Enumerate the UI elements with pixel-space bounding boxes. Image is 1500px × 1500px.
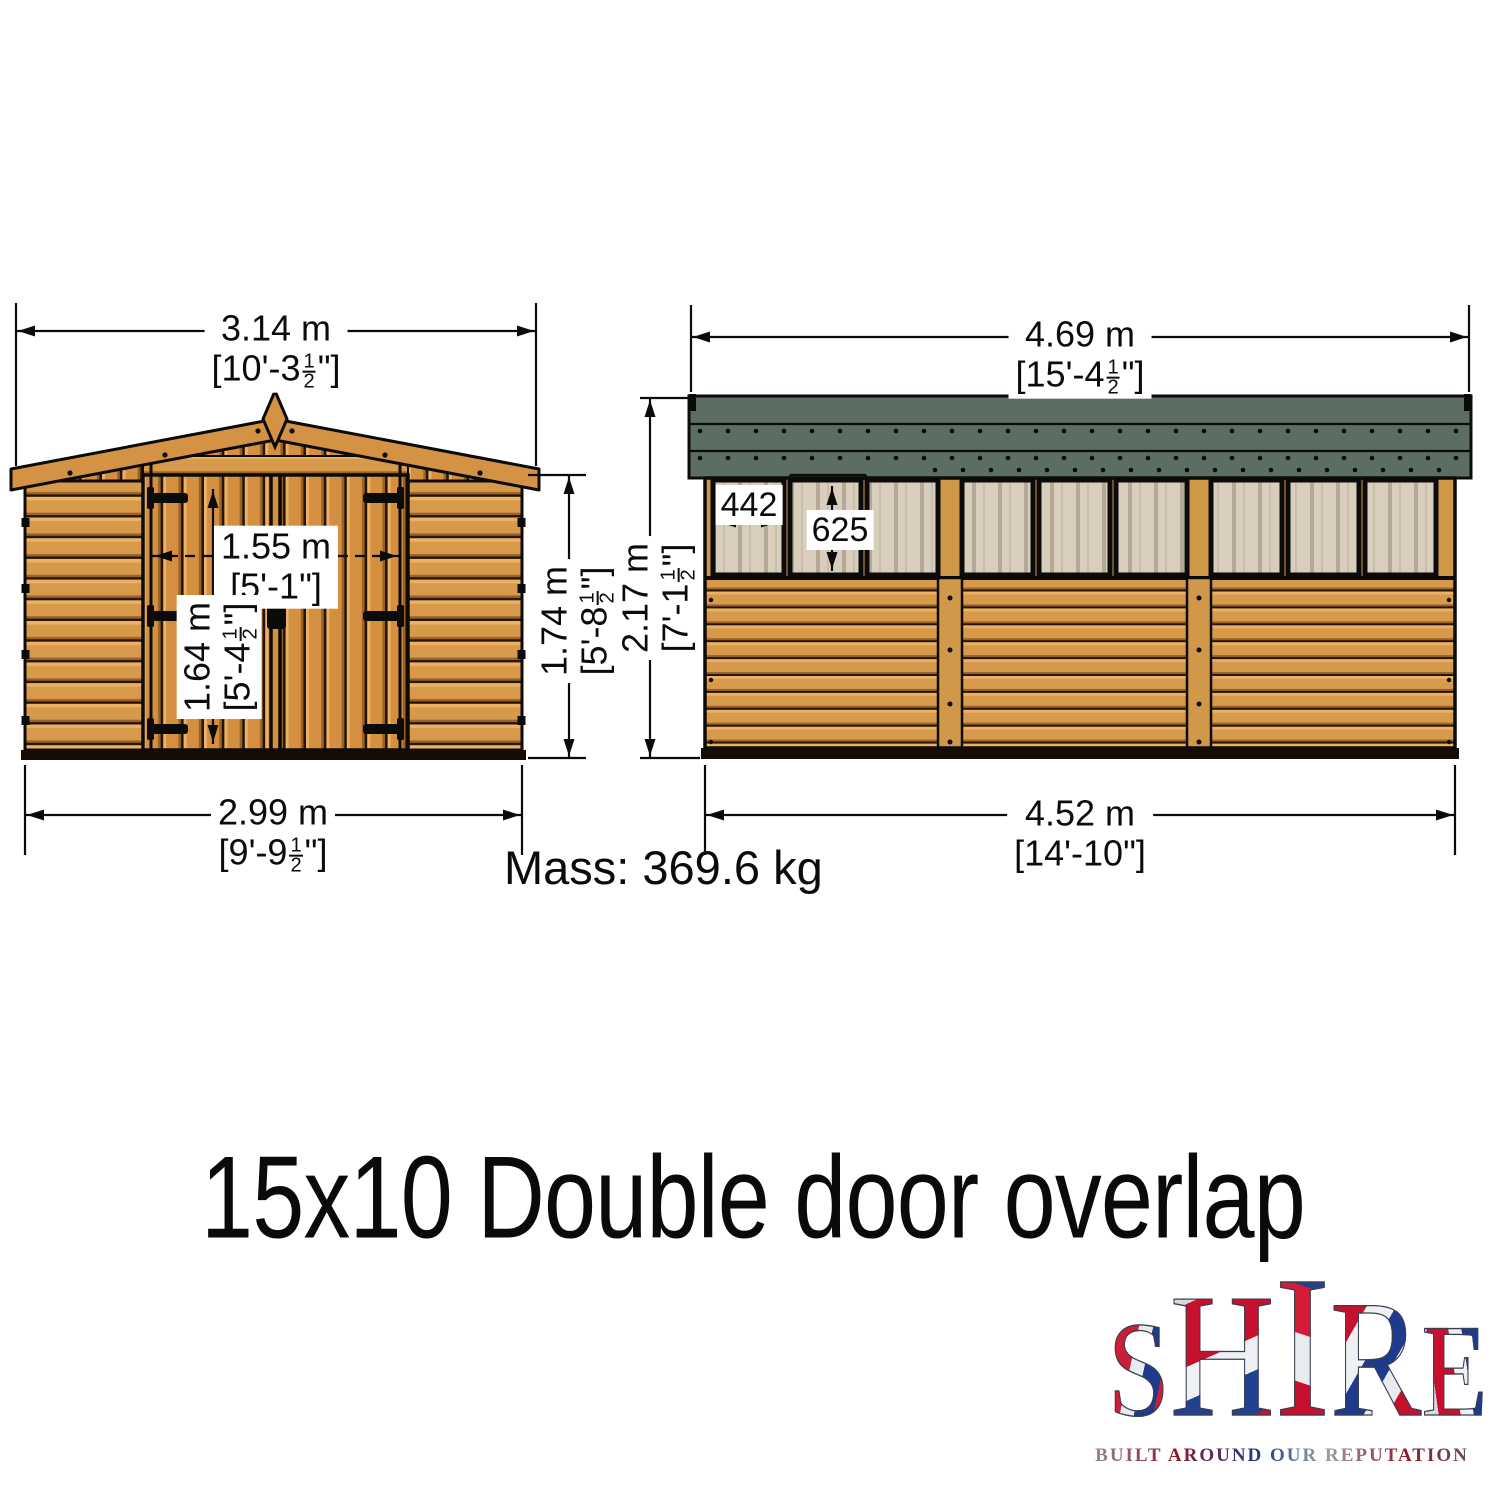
dim-window-height: 625 xyxy=(807,510,874,550)
logo-letter-r: R xyxy=(1330,1267,1421,1452)
dim-front-overall-width: 3.14 m[10'-312"] xyxy=(205,308,348,393)
shire-logo-tagline: BUILT AROUND OUR REPUTATION xyxy=(1072,1445,1492,1467)
mass-label: Mass: 369.6 kg xyxy=(504,840,823,895)
dim-side-overall-width: 4.69 m[15'-412"] xyxy=(1009,314,1152,399)
side-roof-felt xyxy=(689,396,1471,478)
dim-side-base-width: 4.52 m[14'-10"] xyxy=(1007,793,1153,876)
front-left-wall xyxy=(25,481,143,750)
logo-letter-s: S xyxy=(1108,1295,1170,1445)
side-elevation-drawing xyxy=(689,394,1471,759)
logo-letter-e: E xyxy=(1421,1297,1487,1444)
dim-front-base-width: 2.99 m[9'-912"] xyxy=(211,792,335,877)
shed-dimension-diagram: 3.14 m[10'-312"] 2.99 m[9'-912"] 1.55 m[… xyxy=(0,0,1500,1500)
product-title: 15x10 Double door overlap xyxy=(201,1130,1305,1265)
front-right-wall xyxy=(408,481,522,750)
dim-window-width: 442 xyxy=(716,485,783,525)
dim-front-eaves-height: 1.74 m[5'-812"] xyxy=(534,559,619,683)
dim-door-height: 1.64 m[5'-412"] xyxy=(177,595,262,719)
dim-side-ridge-height: 2.17 m[7'-112"] xyxy=(615,536,700,660)
logo-letter-i: I xyxy=(1275,1234,1330,1459)
logo-letter-h: H xyxy=(1170,1258,1275,1454)
